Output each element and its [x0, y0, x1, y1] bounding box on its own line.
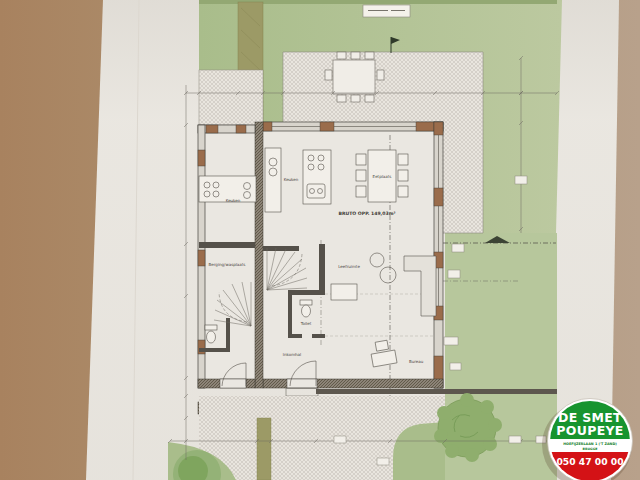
floor-plan-photo: Keuken Keuken Eetplaats BRUTO OPP. 149,0…: [0, 0, 640, 480]
party-wall: [255, 122, 263, 388]
room-label-bureau: Bureau: [409, 359, 424, 364]
garden-path-paving: [199, 70, 263, 125]
room-label-toilet: Toilet: [300, 321, 312, 326]
logo-address: HOEFIJZERLAAN 1 ('T ZAND): [563, 442, 617, 446]
front-fence: [316, 389, 557, 394]
site-plan: Keuken Keuken Eetplaats BRUTO OPP. 149,0…: [0, 0, 640, 480]
room-label-berging: Berging/wasplaats: [209, 262, 246, 267]
kitchen-counter: [265, 148, 281, 212]
sidewalk-paving: [199, 396, 445, 418]
title-plaque: [363, 5, 410, 17]
room-label-inkomhal: Inkomhal: [283, 352, 301, 357]
kitchen-island: [303, 150, 331, 204]
area-label: BRUTO OPP. 149,03m²: [338, 211, 395, 216]
logo-city: BRUGGE: [583, 447, 598, 451]
main-floor: [258, 122, 443, 388]
logo-phone: 050 47 00 00: [556, 456, 623, 467]
room-label-eetplaats: Eetplaats: [373, 174, 392, 179]
driveway-hedge: [257, 418, 271, 480]
room-label-keuken: Keuken: [284, 177, 299, 182]
room-label-leefruimte: Leefruimte: [338, 264, 360, 269]
room-label-keuken-neighbor: Keuken: [226, 198, 241, 203]
logo-name-line2: POUPEYE: [556, 423, 623, 438]
